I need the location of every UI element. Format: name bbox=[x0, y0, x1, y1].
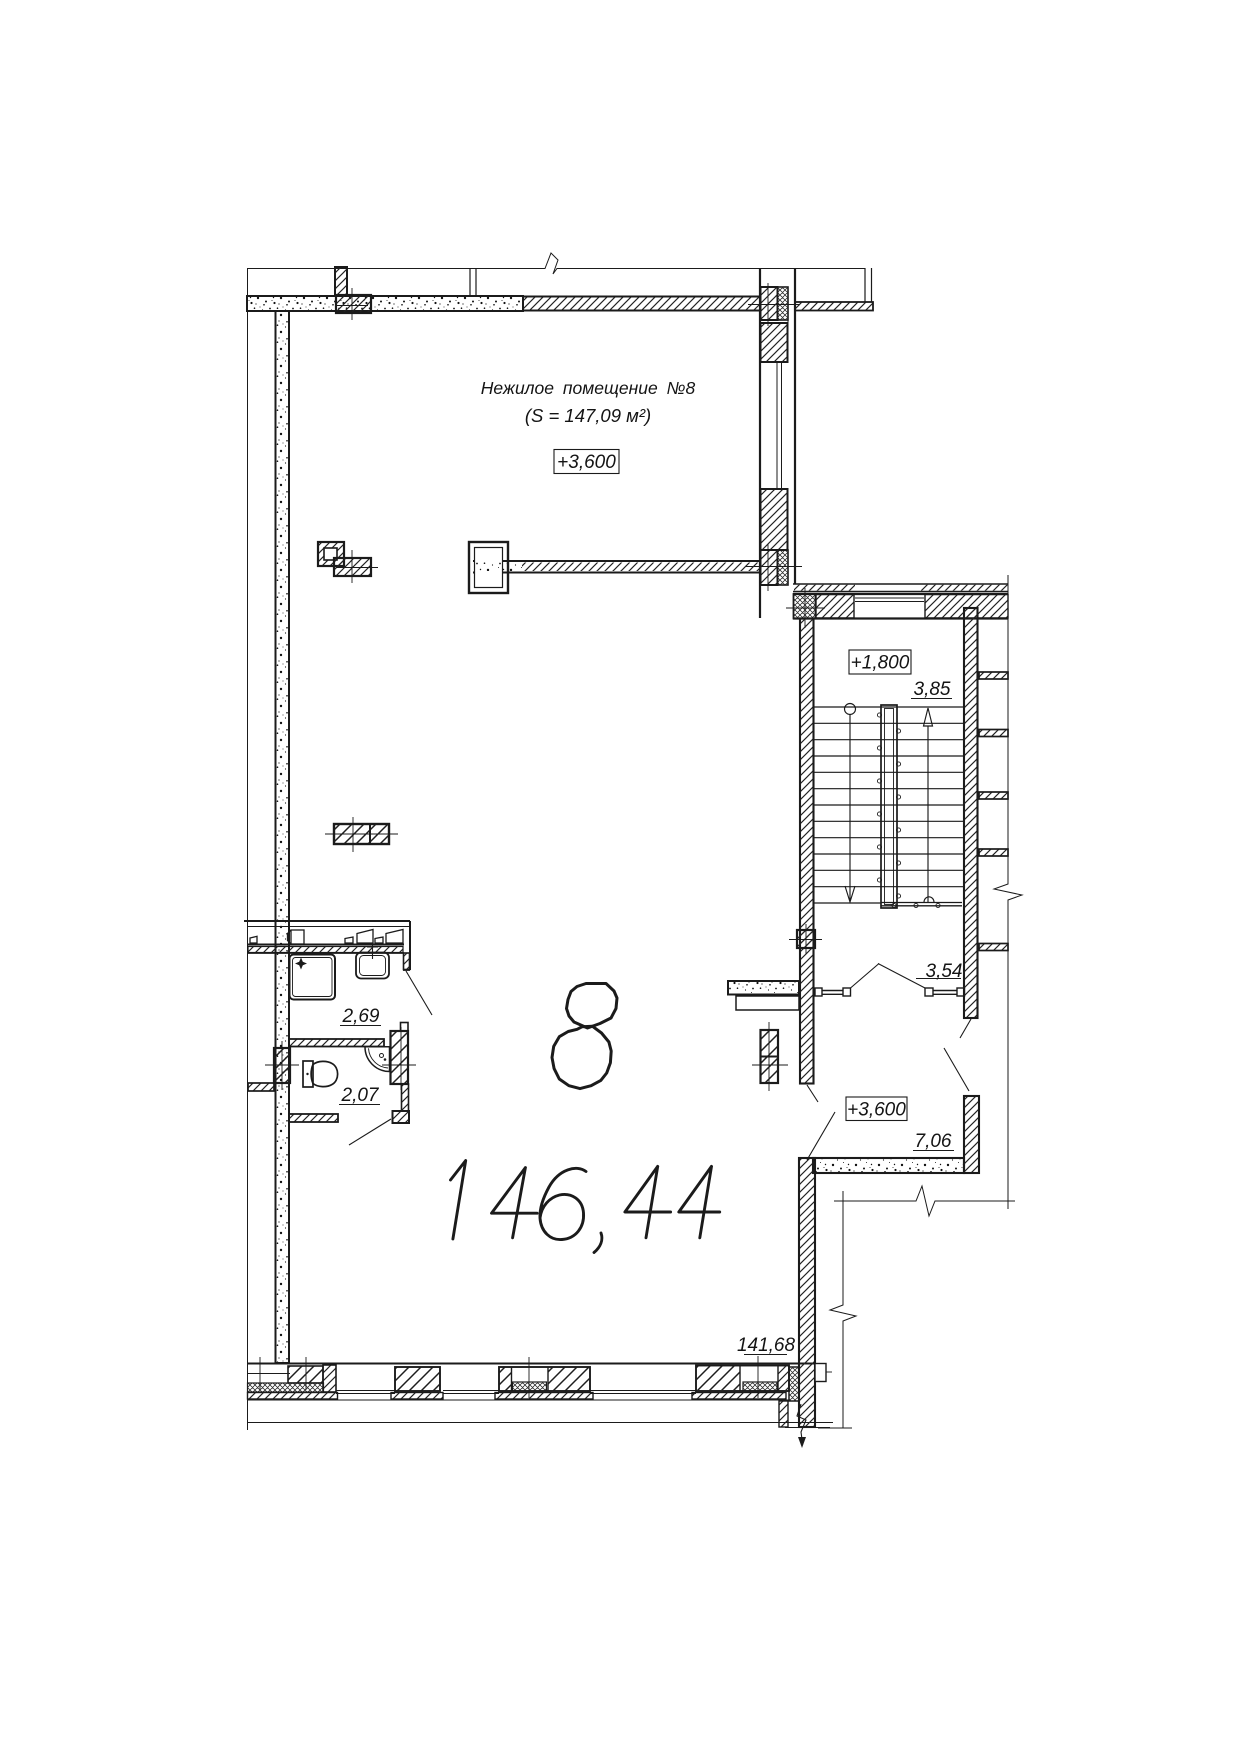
svg-text:+3,600: +3,600 bbox=[557, 452, 616, 473]
svg-text:Нежилое помещение №8: Нежилое помещение №8 bbox=[481, 378, 696, 398]
svg-text:7,06: 7,06 bbox=[915, 1131, 952, 1152]
svg-text:141,68: 141,68 bbox=[737, 1335, 796, 1356]
svg-text:(S = 147,09 м²): (S = 147,09 м²) bbox=[525, 405, 651, 426]
svg-text:2,07: 2,07 bbox=[341, 1085, 380, 1106]
svg-text:2,69: 2,69 bbox=[342, 1006, 380, 1027]
svg-text:+3,600: +3,600 bbox=[847, 1100, 906, 1121]
svg-text:3,85: 3,85 bbox=[914, 679, 951, 700]
svg-text:+1,800: +1,800 bbox=[851, 653, 910, 674]
